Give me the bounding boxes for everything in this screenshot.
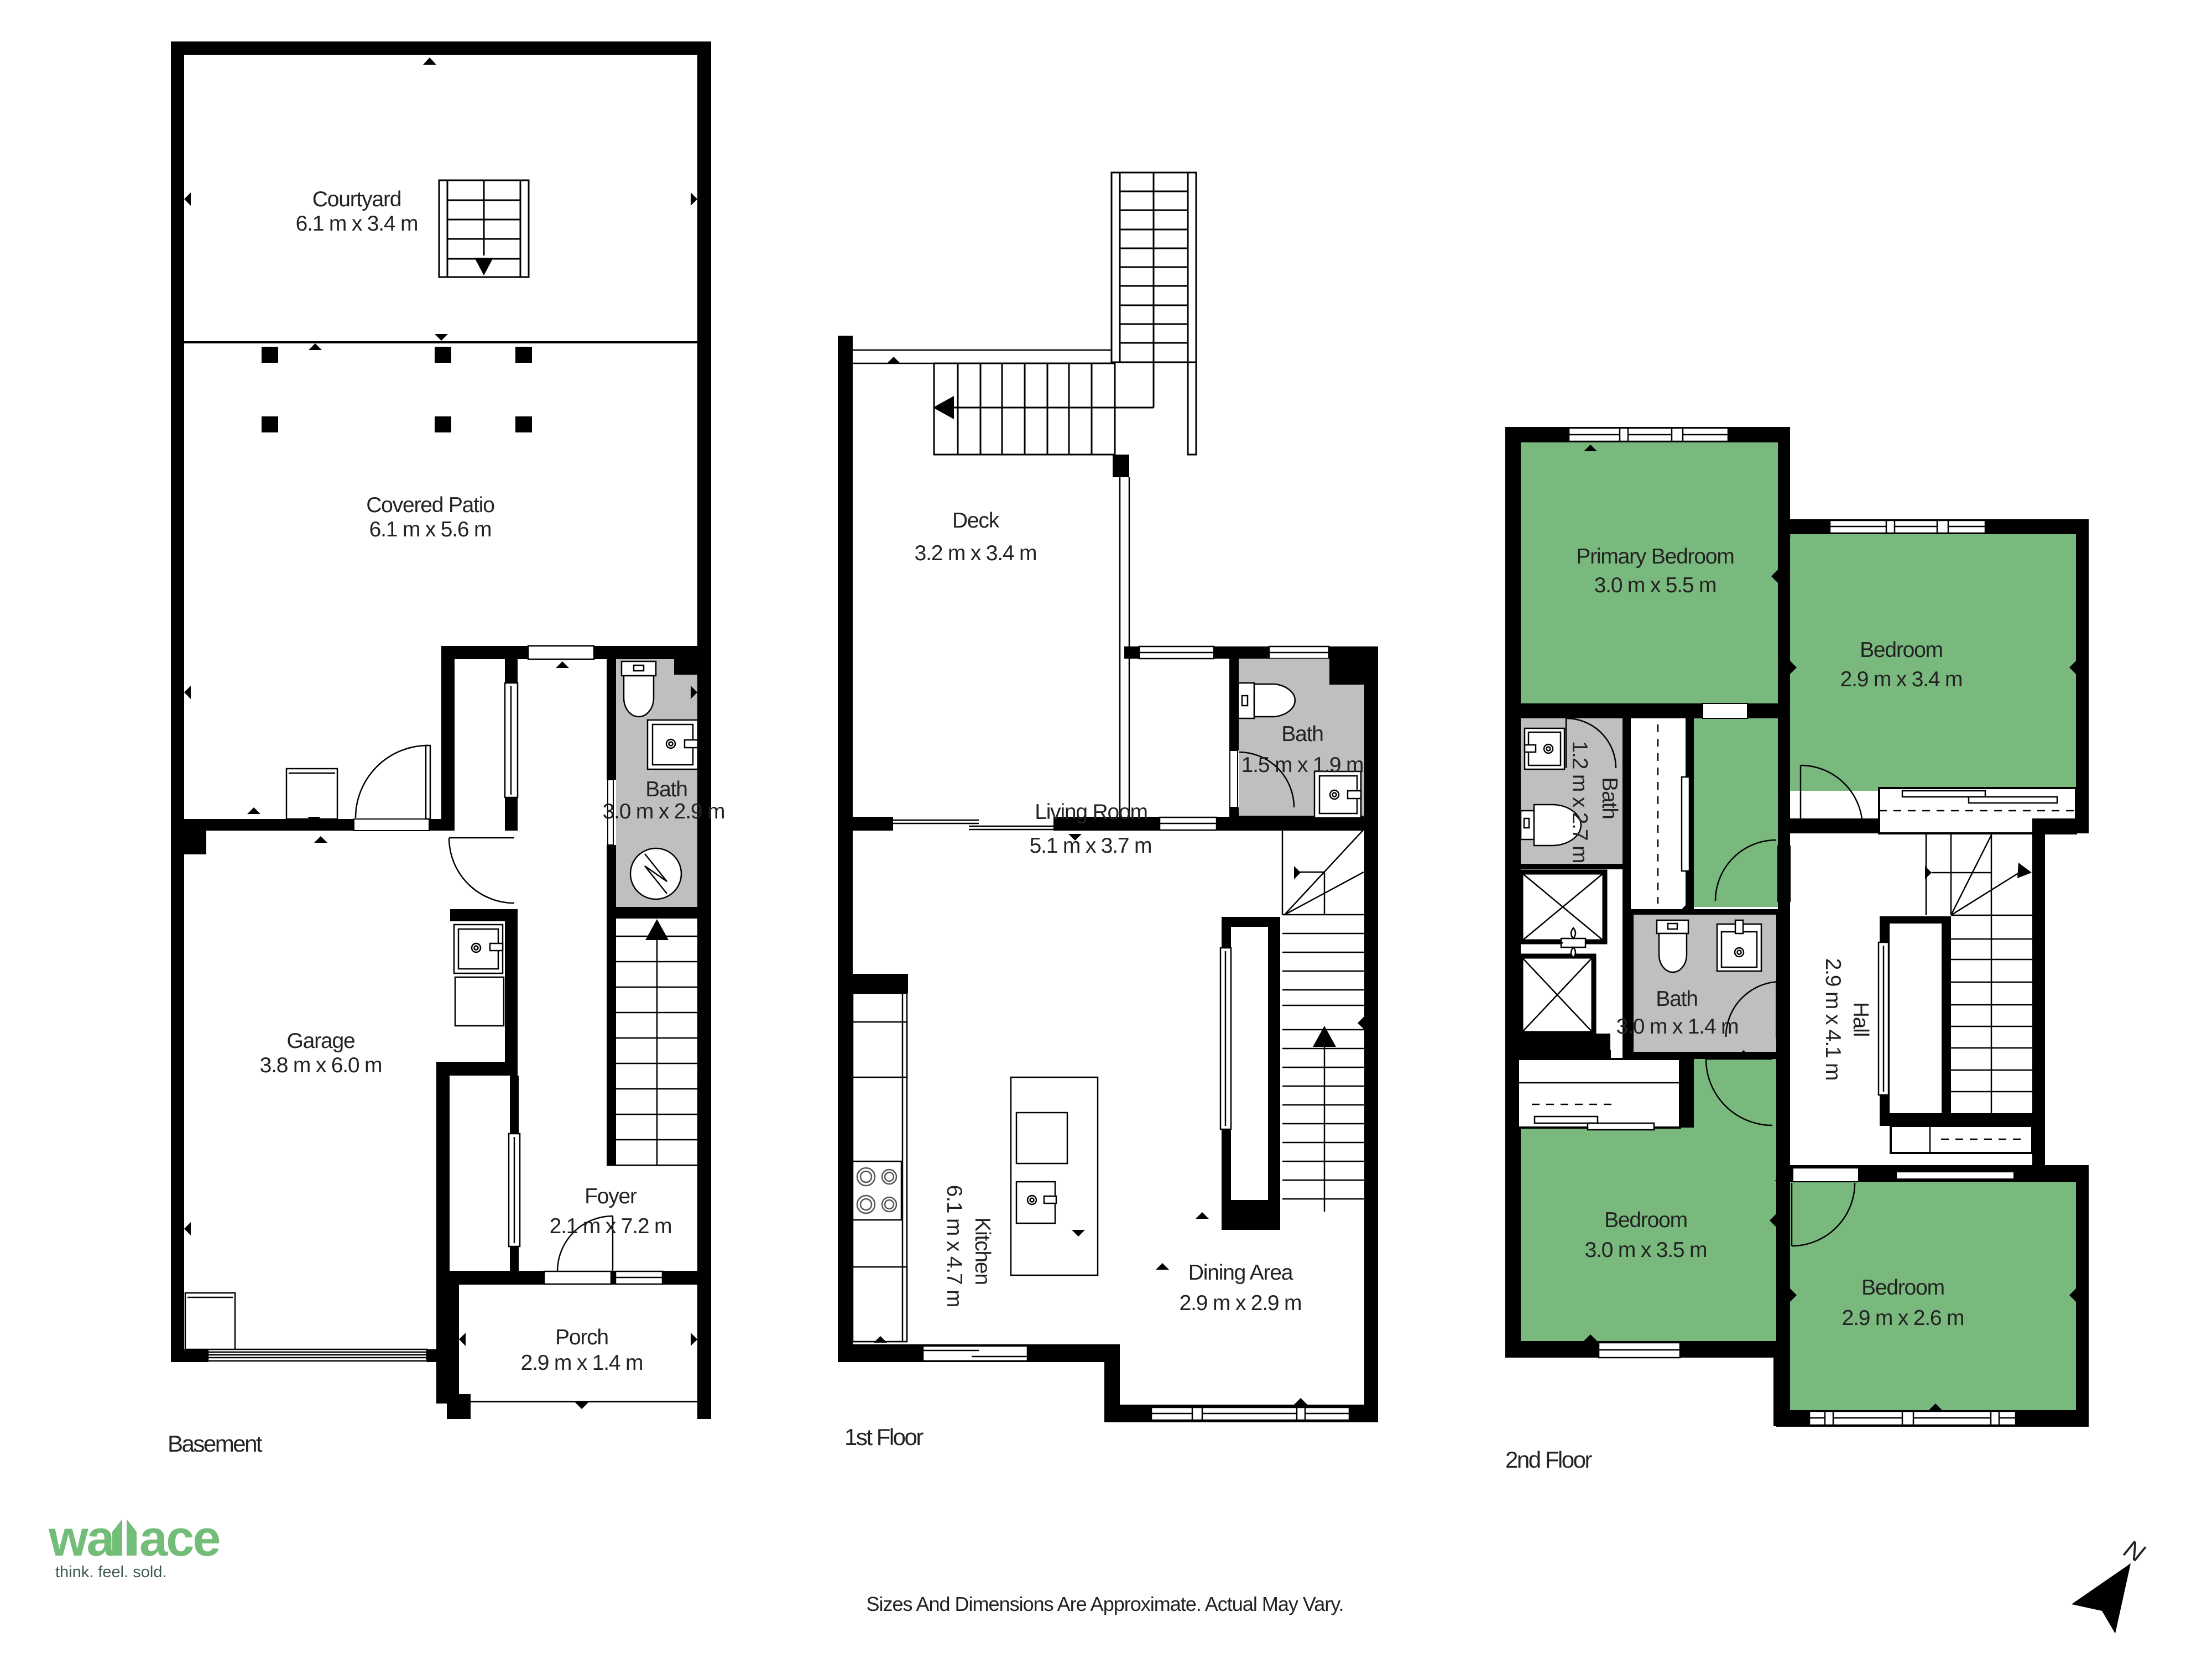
svg-text:wa: wa bbox=[48, 1510, 116, 1567]
svg-text:2.9 m x 4.1 m: 2.9 m x 4.1 m bbox=[1821, 958, 1845, 1081]
svg-text:Bath: Bath bbox=[1598, 777, 1621, 818]
svg-text:Basement: Basement bbox=[168, 1431, 263, 1457]
svg-text:Hall: Hall bbox=[1849, 1002, 1872, 1036]
svg-text:2nd Floor: 2nd Floor bbox=[1505, 1447, 1592, 1473]
svg-text:3.0 m x 3.5 m: 3.0 m x 3.5 m bbox=[1585, 1238, 1707, 1262]
svg-text:think. feel. sold.: think. feel. sold. bbox=[55, 1563, 167, 1581]
svg-text:Bath: Bath bbox=[1281, 722, 1323, 746]
svg-text:1st Floor: 1st Floor bbox=[844, 1424, 924, 1450]
svg-text:3.2 m x 3.4 m: 3.2 m x 3.4 m bbox=[915, 541, 1037, 565]
svg-text:2.9 m x 2.6 m: 2.9 m x 2.6 m bbox=[1842, 1306, 1964, 1330]
svg-text:Garage: Garage bbox=[287, 1029, 355, 1053]
svg-text:2.9 m x 3.4 m: 2.9 m x 3.4 m bbox=[1840, 667, 1963, 691]
svg-text:Courtyard: Courtyard bbox=[312, 187, 401, 211]
svg-text:2.9 m x 1.4 m: 2.9 m x 1.4 m bbox=[521, 1351, 643, 1375]
svg-text:5.1 m x 3.7 m: 5.1 m x 3.7 m bbox=[1030, 834, 1152, 858]
svg-text:Bedroom: Bedroom bbox=[1860, 638, 1943, 662]
svg-text:2.1 m x 7.2 m: 2.1 m x 7.2 m bbox=[550, 1214, 672, 1238]
svg-text:Porch: Porch bbox=[555, 1326, 608, 1349]
svg-text:Kitchen: Kitchen bbox=[971, 1217, 994, 1285]
svg-text:1.5 m x 1.9 m: 1.5 m x 1.9 m bbox=[1241, 753, 1364, 777]
svg-text:Bedroom: Bedroom bbox=[1861, 1276, 1944, 1300]
svg-text:Living Room: Living Room bbox=[1035, 800, 1147, 824]
svg-text:Deck: Deck bbox=[952, 509, 1000, 533]
svg-text:ace: ace bbox=[139, 1510, 220, 1567]
svg-text:Primary Bedroom: Primary Bedroom bbox=[1576, 545, 1734, 568]
svg-text:3.0 m x 1.4 m: 3.0 m x 1.4 m bbox=[1616, 1015, 1739, 1039]
svg-text:2.9 m x 2.9 m: 2.9 m x 2.9 m bbox=[1180, 1291, 1302, 1315]
svg-text:1.2 m x 2.7 m: 1.2 m x 2.7 m bbox=[1568, 741, 1592, 863]
svg-text:6.1 m x 5.6 m: 6.1 m x 5.6 m bbox=[369, 518, 492, 541]
svg-text:3.8 m x 6.0 m: 3.8 m x 6.0 m bbox=[260, 1053, 382, 1077]
svg-text:6.1 m x 3.4 m: 6.1 m x 3.4 m bbox=[296, 212, 418, 236]
svg-text:3.0 m x 2.9 m: 3.0 m x 2.9 m bbox=[603, 800, 725, 823]
svg-text:Dining Area: Dining Area bbox=[1188, 1261, 1293, 1285]
svg-text:3.0 m x 5.5 m: 3.0 m x 5.5 m bbox=[1594, 573, 1717, 597]
svg-text:Bedroom: Bedroom bbox=[1604, 1208, 1687, 1232]
svg-text:Sizes And Dimensions Are Appro: Sizes And Dimensions Are Approximate. Ac… bbox=[866, 1593, 1343, 1615]
svg-text:Bath: Bath bbox=[1656, 987, 1697, 1011]
svg-text:Foyer: Foyer bbox=[585, 1185, 637, 1208]
svg-text:Bath: Bath bbox=[645, 778, 687, 801]
svg-text:6.1 m x 4.7 m: 6.1 m x 4.7 m bbox=[942, 1185, 966, 1307]
svg-text:Covered Patio: Covered Patio bbox=[366, 493, 494, 517]
